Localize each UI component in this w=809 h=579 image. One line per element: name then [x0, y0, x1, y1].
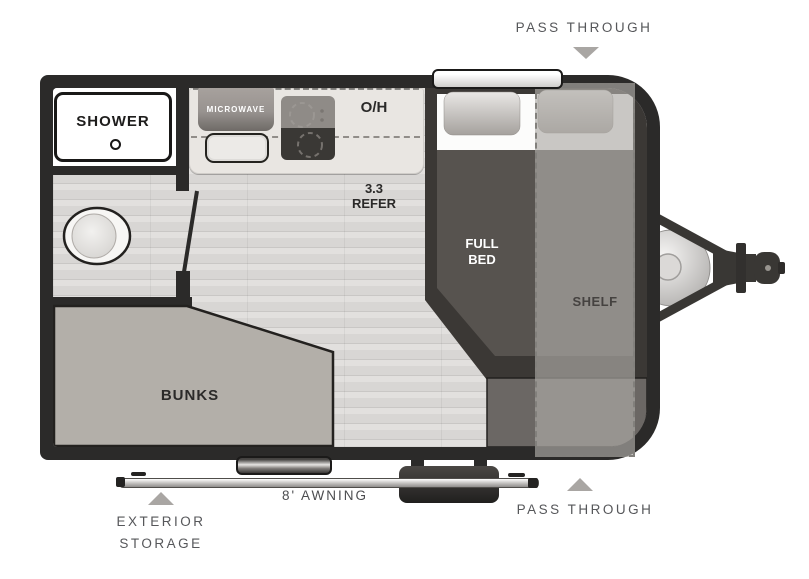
awning-rail-tick-left [131, 472, 146, 476]
window-bunks-icon [236, 456, 332, 475]
stove-knob-dot-2 [320, 118, 324, 122]
refrigerator-label: 3.3 REFER [334, 181, 414, 211]
pass-through-top-arrow-icon [573, 47, 599, 59]
refer-size: 3.3 [365, 181, 383, 196]
pass-through-top-label: PASS THROUGH [504, 20, 664, 35]
exterior-storage-arrow-icon [148, 492, 174, 505]
bathroom-door-swing [184, 191, 197, 272]
awning-rail-cap-left [116, 477, 125, 487]
pass-through-bottom-arrow-icon [567, 478, 593, 491]
exterior-storage-label: EXTERIOR STORAGE [101, 511, 221, 555]
window-front-icon [432, 69, 563, 89]
burner-top-icon [290, 103, 314, 127]
floorplan-canvas: SHOWER MICROWAVE [0, 0, 809, 579]
bunks-outline [54, 306, 333, 446]
coupler-tip [778, 262, 785, 274]
pillow-left-icon [444, 92, 520, 135]
stove-knob-dot-1 [320, 109, 324, 113]
awning-rail-tick-right [508, 473, 525, 477]
full-bed-line1: FULL [465, 236, 498, 251]
awning-label: 8' AWNING [255, 488, 395, 503]
overhead-label: O/H [334, 99, 414, 116]
pass-through-overlay [535, 83, 635, 457]
shelf-label: SHELF [560, 294, 630, 309]
awning-rail-cap-right [528, 478, 538, 488]
exterior-storage-line1: EXTERIOR [116, 514, 205, 529]
exterior-storage-line2: STORAGE [119, 536, 202, 551]
full-bed-line2: BED [468, 252, 495, 267]
toilet-bowl-icon [72, 214, 116, 258]
awning-rail-icon [119, 478, 539, 488]
hitch-assembly [640, 198, 790, 338]
coupler-crossbar [736, 243, 746, 293]
pass-through-bottom-label: PASS THROUGH [505, 502, 665, 517]
bunks-label: BUNKS [150, 387, 230, 404]
full-bed-label: FULL BED [447, 236, 517, 268]
refer-text: REFER [352, 196, 396, 211]
burner-bottom-icon [298, 133, 322, 157]
coupler-pin-hole [765, 265, 771, 271]
